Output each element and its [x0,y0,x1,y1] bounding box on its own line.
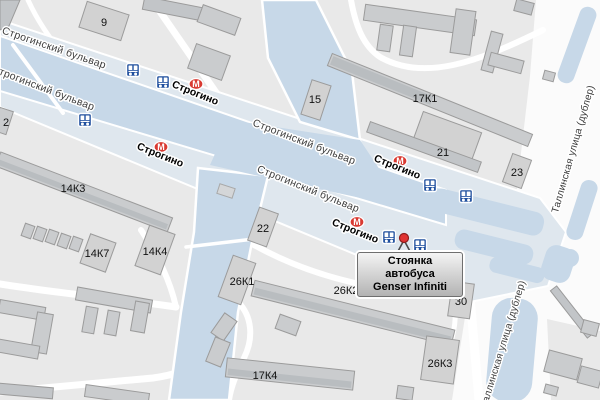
building-label-21: 21 [437,147,449,159]
building-label-14k7: 14К7 [85,248,110,260]
building-label-15: 15 [309,94,321,106]
callout-line1: Стоянка автобуса [362,255,458,281]
bus-stop-icon-7[interactable] [414,239,427,252]
bus-stop-icon-4[interactable] [424,179,437,192]
building-shape [396,385,414,400]
building-label-9: 9 [101,17,107,29]
building-label-22: 22 [257,223,269,235]
callout-line2: Genser Infiniti [362,281,458,294]
building-label-30: 30 [455,296,467,308]
bus-stop-icon-6[interactable] [383,231,396,244]
bus-stop-icon-5[interactable] [460,190,473,203]
building-label-26k3: 26К3 [428,358,453,370]
map-svg: М [0,0,600,400]
bus-parking-callout[interactable]: Стоянка автобуса Genser Infiniti [357,252,463,297]
building-label-26k1: 26К1 [230,276,255,288]
building-label-17k4: 17К4 [253,370,278,382]
building-label-14k4: 14К4 [143,246,168,258]
bus-stop-icon-2[interactable] [157,76,170,89]
building-label-14k3: 14К3 [61,183,86,195]
building-label-23: 23 [511,167,523,179]
building-label-26k2: 26К2 [334,285,359,297]
bus-stop-icon-1[interactable] [127,64,140,77]
map-canvas[interactable]: М [0,0,600,400]
building-label-17k1: 17К1 [413,93,438,105]
bus-stop-icon-3[interactable] [79,114,92,127]
marker-dot-icon[interactable] [400,234,409,243]
building-label-2: 2 [3,117,9,129]
